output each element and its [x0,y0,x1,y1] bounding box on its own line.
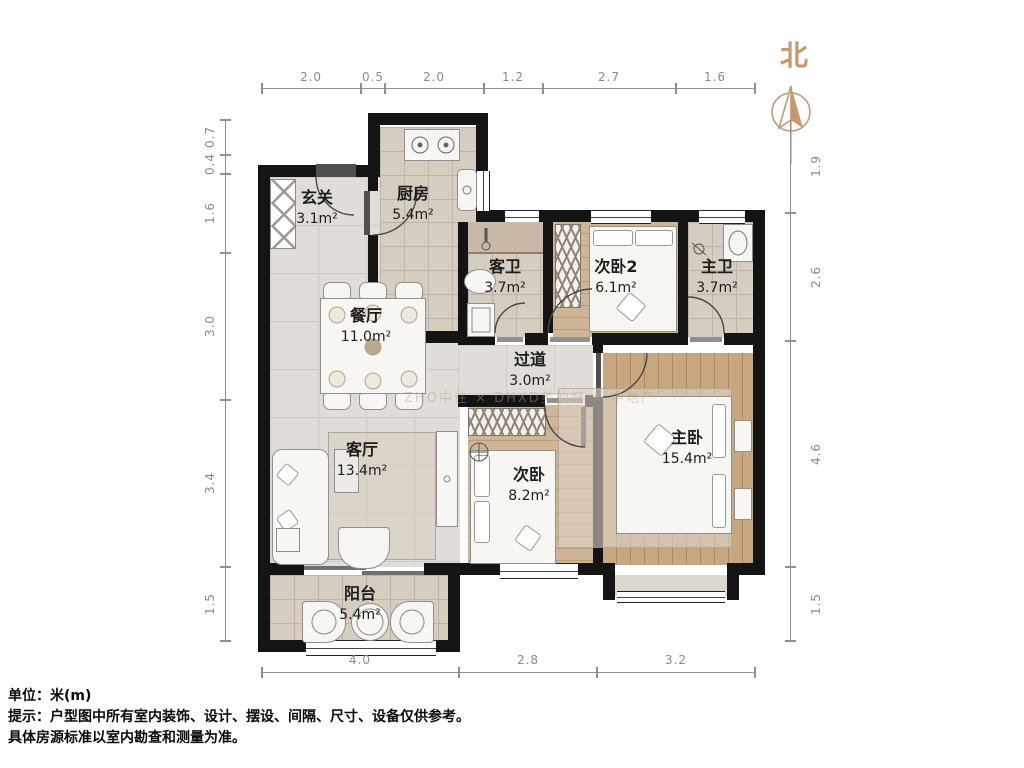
dim-tick [785,566,796,568]
dim-tick [261,83,263,94]
dim-tick [754,667,756,678]
dim-tick [220,399,231,401]
dim-label-left-1: 0.4 [202,144,218,184]
disclaimer-notes: 单位：米(m) 提示：户型图中所有室内装饰、设计、摆设、间隔、尺寸、设备仅供参考… [8,686,470,749]
dim-tick [220,640,231,642]
dim-tick [220,119,231,121]
dim-label-top-3: 1.2 [493,69,533,85]
guest-bath-faucet-icon [482,228,490,250]
dim-label-bottom-0: 4.0 [340,652,380,668]
dim-tick [220,154,231,156]
note-tip2: 具体房源标准以室内勘查和测量为准。 [8,728,470,749]
dim-tick [785,340,796,342]
dim-label-bottom-1: 2.8 [508,652,548,668]
dim-tick [220,566,231,568]
dim-label-top-2: 2.0 [414,69,454,85]
dim-label-left-5: 1.5 [202,584,218,624]
dim-tick [542,83,544,94]
dim-tick [785,640,796,642]
dim-label-right-2: 4.6 [808,434,824,474]
dim-tick [675,83,677,94]
dim-tick [261,667,263,678]
dim-line-right [790,120,791,641]
dim-label-top-0: 2.0 [291,69,331,85]
master-bath-sink-basin-icon [729,231,747,255]
dim-label-bottom-2: 3.2 [656,652,696,668]
floorplan-canvas: 玄关 3.1m² 厨房 5.4m² 客卫 3.7m² 次卧2 6.1m² 主卫 … [0,0,1024,768]
dim-label-top-5: 1.6 [695,69,735,85]
note-unit: 单位：米(m) [8,686,470,707]
dim-label-right-3: 1.5 [808,584,824,624]
dim-label-left-2: 1.6 [202,193,218,233]
dim-tick [785,212,796,214]
dim-line-bottom [262,672,756,673]
dim-tick [754,83,756,94]
dim-tick [220,252,231,254]
dim-tick [220,173,231,175]
dim-tick [458,667,460,678]
note-tip1: 提示：户型图中所有室内装饰、设计、摆设、间隔、尺寸、设备仅供参考。 [8,707,470,728]
dining-centerpiece [365,339,381,355]
stove-burners-icon [412,137,454,153]
dim-line-left [225,120,226,641]
bedroom-ceiling-fan-icon [470,443,488,461]
washer-drums [312,609,424,635]
tv-icon [444,476,450,482]
dining-plates [329,305,417,389]
north-label: 北 [772,34,816,74]
kitchen-sink-drain-icon [463,186,471,194]
master-bath-faucet-icon [692,243,706,255]
dim-label-right-1: 2.6 [808,257,824,297]
dim-label-top-1: 0.5 [353,69,393,85]
watermark-text: ZHO中住 × DHXD美的好 × 中地产 [300,387,760,406]
dim-line-top [262,88,756,89]
compass-icon [763,76,819,166]
guest-bath-sink-basin-icon [472,308,490,332]
dim-label-left-3: 3.0 [202,306,218,346]
dim-label-left-4: 3.4 [202,463,218,503]
dim-label-top-4: 2.7 [589,69,629,85]
dim-tick [596,667,598,678]
dim-tick [483,83,485,94]
